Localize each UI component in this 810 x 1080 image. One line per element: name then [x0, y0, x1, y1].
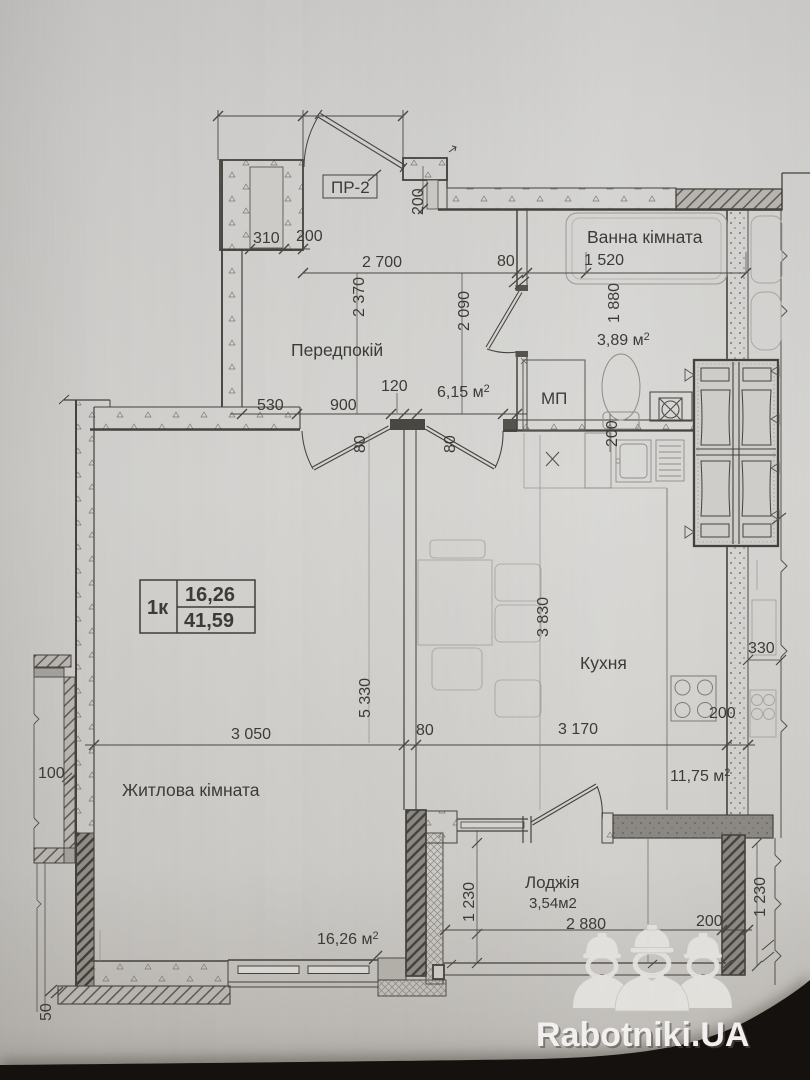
svg-text:900: 900 [330, 397, 357, 414]
svg-text:200: 200 [410, 188, 427, 215]
svg-text:310: 310 [253, 230, 280, 247]
svg-text:100: 100 [38, 765, 65, 782]
svg-text:80: 80 [416, 722, 434, 739]
svg-text:2 700: 2 700 [362, 254, 402, 271]
svg-text:3 050: 3 050 [231, 726, 271, 743]
svg-text:1 880: 1 880 [606, 283, 623, 323]
svg-text:Житлова кімната: Житлова кімната [122, 780, 260, 800]
svg-text:2 880: 2 880 [566, 916, 606, 933]
svg-text:3 170: 3 170 [558, 721, 598, 738]
svg-text:11,75 м2: 11,75 м2 [670, 767, 730, 785]
svg-text:МП: МП [541, 389, 567, 408]
svg-text:ПР-2: ПР-2 [331, 178, 370, 197]
svg-text:1к: 1к [147, 597, 169, 619]
svg-text:2 090: 2 090 [456, 291, 473, 331]
svg-text:5 330: 5 330 [357, 678, 374, 718]
svg-text:Rabotniki.UA: Rabotniki.UA [536, 1016, 749, 1054]
svg-text:50: 50 [38, 1003, 55, 1021]
svg-text:530: 530 [257, 397, 284, 414]
svg-text:80: 80 [442, 435, 459, 453]
svg-text:16,26: 16,26 [185, 584, 235, 606]
svg-text:330: 330 [748, 640, 775, 657]
svg-text:Лоджія: Лоджія [525, 873, 580, 892]
svg-text:1 230: 1 230 [461, 882, 478, 922]
svg-text:200: 200 [296, 228, 323, 245]
svg-text:41,59: 41,59 [184, 610, 234, 632]
svg-text:200: 200 [709, 705, 736, 722]
svg-text:1 230: 1 230 [752, 877, 769, 917]
svg-text:2 370: 2 370 [351, 277, 368, 317]
svg-text:120: 120 [381, 378, 408, 395]
svg-text:1 520: 1 520 [584, 252, 624, 269]
svg-text:3 830: 3 830 [535, 597, 552, 637]
svg-text:200: 200 [696, 913, 723, 930]
svg-text:Передпокій: Передпокій [291, 340, 383, 360]
svg-text:80: 80 [352, 435, 369, 453]
svg-text:Кухня: Кухня [580, 653, 627, 673]
svg-text:3,54м2: 3,54м2 [529, 895, 577, 912]
svg-text:16,26 м2: 16,26 м2 [317, 930, 379, 948]
svg-text:200: 200 [604, 420, 621, 447]
svg-text:3,89 м2: 3,89 м2 [597, 331, 650, 349]
svg-text:Ванна кімната: Ванна кімната [587, 227, 703, 247]
svg-text:80: 80 [497, 253, 515, 270]
svg-text:6,15 м2: 6,15 м2 [437, 383, 490, 401]
